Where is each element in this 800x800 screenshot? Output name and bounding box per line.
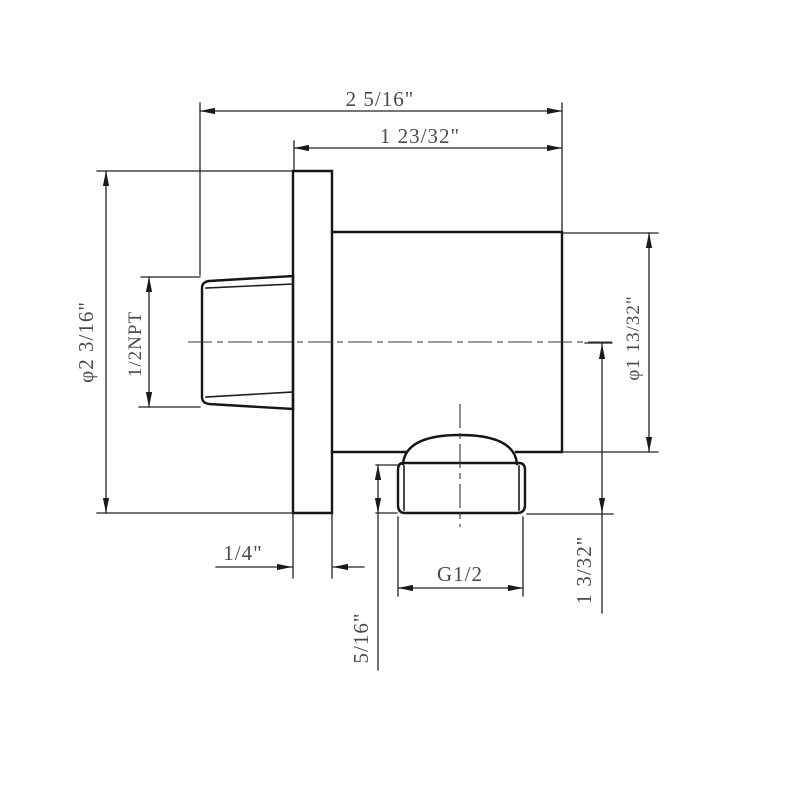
ext-nut-left [376, 465, 397, 513]
outlet-nut-chamfer-lines [404, 466, 519, 510]
dimension-body-diameter: φ1 13/32" [623, 233, 649, 452]
ext-flange-thickness [293, 514, 332, 578]
centerlines [188, 342, 612, 527]
dim-label-depth-from-wall: 1 23/32" [380, 124, 460, 148]
dim-label-inlet-thread: 1/2NPT [125, 311, 146, 377]
technical-drawing-svg: 2 5/16" 1 23/32" φ2 3/16" 1/2NPT φ1 13/3… [0, 0, 800, 800]
dimension-flange-diameter: φ2 3/16" [74, 171, 106, 513]
dim-label-body-diameter: φ1 13/32" [623, 295, 644, 380]
dim-label-overall-depth: 2 5/16" [346, 87, 415, 111]
dimension-flange-thickness: 1/4" [216, 541, 364, 567]
dim-label-outlet-thread: G1/2 [437, 562, 483, 586]
dim-label-center-to-nut-bottom: 1 3/32" [572, 536, 596, 605]
inlet-fitting-thread-lines [206, 284, 293, 397]
outlet-nut-outline [398, 463, 525, 513]
dimension-outlet-thread: G1/2 [398, 562, 523, 588]
dimension-depth-from-wall: 1 23/32" [294, 124, 562, 148]
dim-label-flange-diameter: φ2 3/16" [74, 301, 98, 383]
technical-drawing-page: 2 5/16" 1 23/32" φ2 3/16" 1/2NPT φ1 13/3… [0, 0, 800, 800]
dimension-inlet-thread: 1/2NPT [125, 277, 149, 407]
dimension-center-to-nut-bottom: 1 3/32" [572, 344, 602, 613]
dimension-overall-depth: 2 5/16" [200, 87, 562, 111]
dim-label-flange-thickness: 1/4" [223, 541, 262, 565]
dim-label-nut-height: 5/16" [349, 613, 373, 664]
